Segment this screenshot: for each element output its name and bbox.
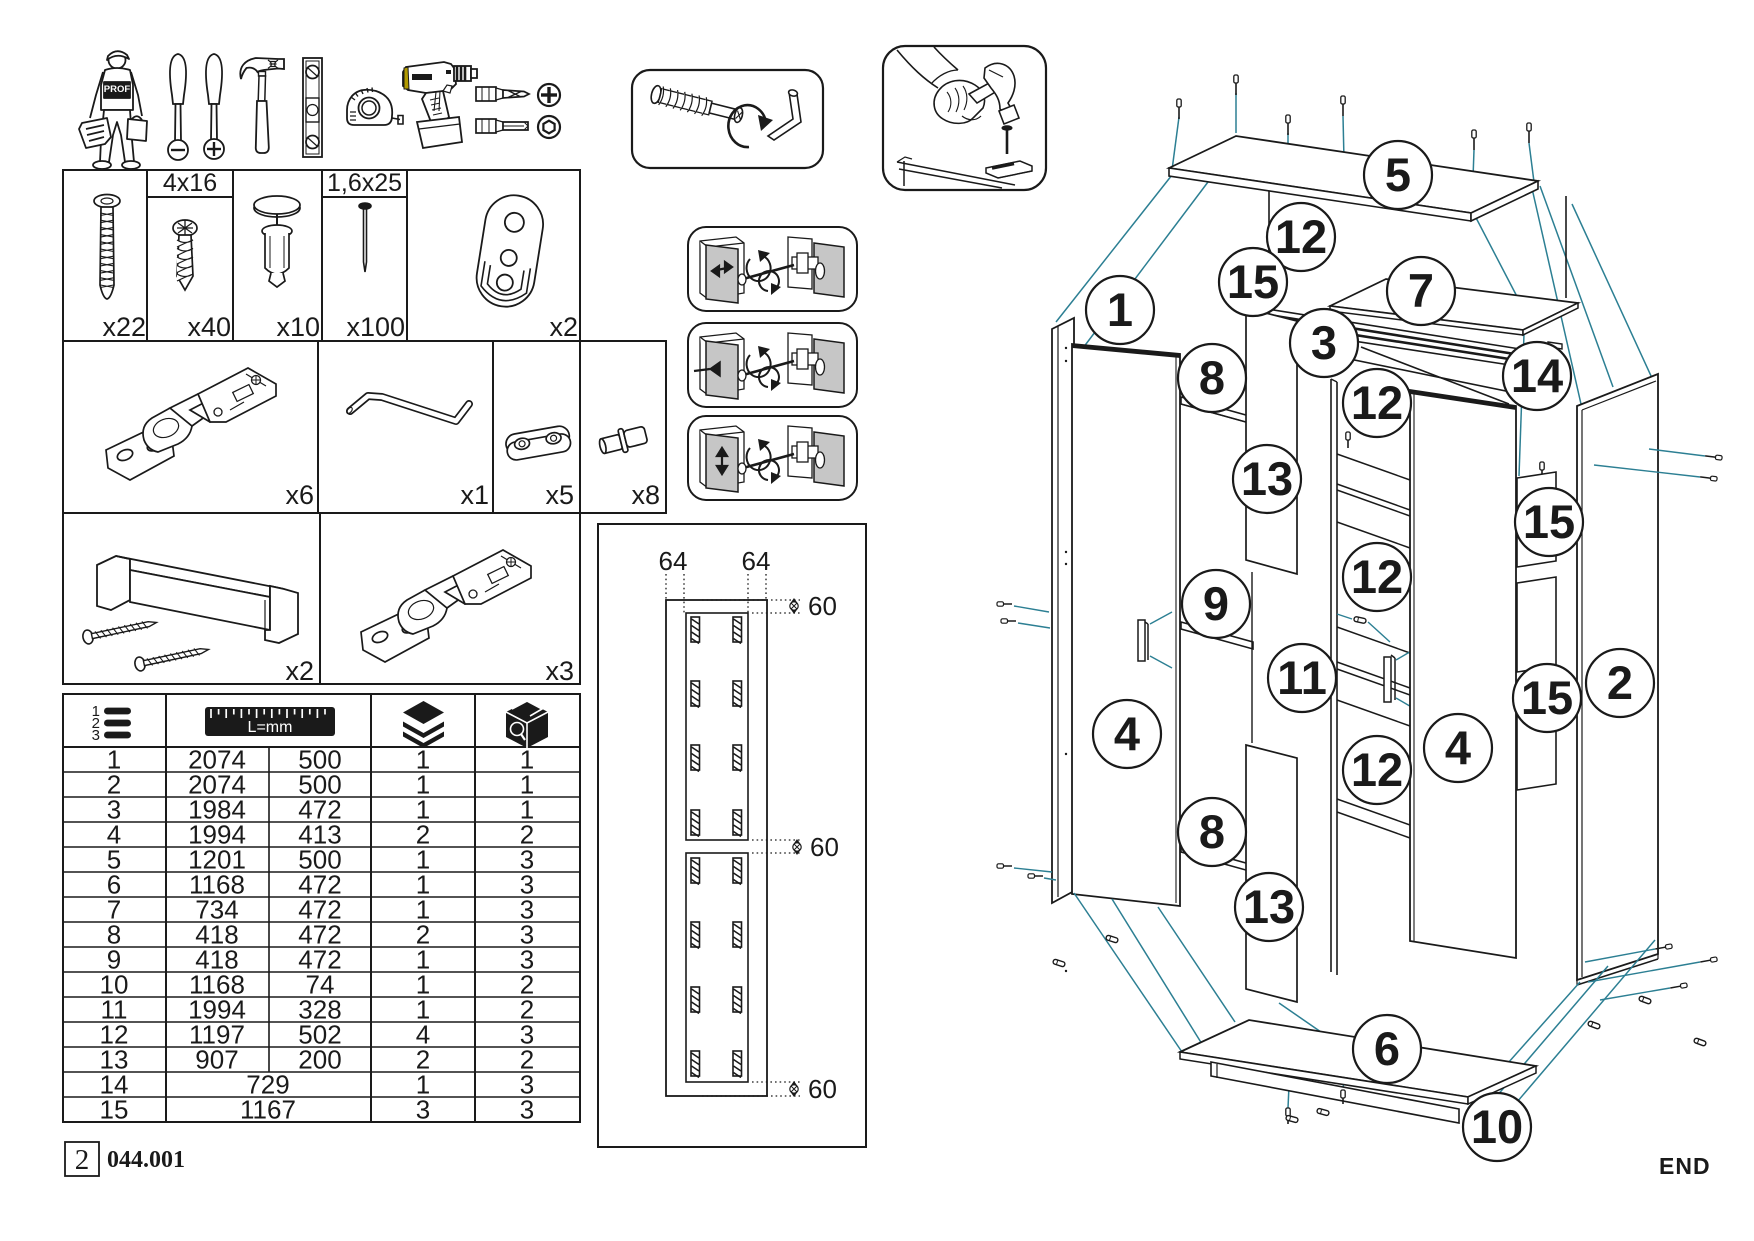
svg-text:60: 60 bbox=[808, 591, 837, 621]
svg-text:2: 2 bbox=[75, 1144, 90, 1176]
svg-text:L=mm: L=mm bbox=[248, 719, 293, 736]
svg-text:12: 12 bbox=[1351, 743, 1403, 796]
svg-text:60: 60 bbox=[810, 832, 839, 862]
svg-text:x10: x10 bbox=[276, 312, 320, 342]
svg-text:x22: x22 bbox=[102, 312, 146, 342]
svg-text:14: 14 bbox=[1511, 349, 1563, 402]
svg-text:x6: x6 bbox=[285, 480, 314, 510]
svg-text:x3: x3 bbox=[545, 656, 574, 686]
svg-text:8: 8 bbox=[1199, 351, 1225, 404]
svg-text:12: 12 bbox=[1275, 210, 1327, 263]
svg-text:x8: x8 bbox=[631, 480, 660, 510]
svg-text:x2: x2 bbox=[285, 656, 314, 686]
svg-text:11: 11 bbox=[1277, 651, 1327, 704]
svg-text:x40: x40 bbox=[187, 312, 231, 342]
svg-text:END: END bbox=[1659, 1153, 1711, 1179]
svg-text:x1: x1 bbox=[460, 480, 489, 510]
svg-text:x2: x2 bbox=[549, 312, 578, 342]
svg-text:1167: 1167 bbox=[240, 1095, 296, 1125]
svg-text:60: 60 bbox=[808, 1074, 837, 1104]
svg-text:044.001: 044.001 bbox=[107, 1147, 185, 1173]
svg-text:4: 4 bbox=[1445, 721, 1471, 774]
svg-text:8: 8 bbox=[1199, 805, 1225, 858]
svg-text:4: 4 bbox=[1114, 707, 1140, 760]
svg-text:64: 64 bbox=[742, 546, 771, 576]
svg-text:3: 3 bbox=[416, 1095, 430, 1125]
svg-text:x5: x5 bbox=[545, 480, 574, 510]
svg-text:3: 3 bbox=[1311, 316, 1337, 369]
svg-text:15: 15 bbox=[1523, 495, 1575, 548]
svg-text:7: 7 bbox=[1408, 264, 1434, 317]
svg-text:4x16: 4x16 bbox=[163, 169, 217, 197]
svg-text:3: 3 bbox=[92, 727, 100, 744]
svg-text:10: 10 bbox=[1471, 1100, 1523, 1153]
svg-text:12: 12 bbox=[1351, 376, 1403, 429]
svg-text:9: 9 bbox=[1203, 577, 1229, 630]
svg-text:3: 3 bbox=[520, 1095, 534, 1125]
svg-text:12: 12 bbox=[1351, 550, 1403, 603]
svg-text:1: 1 bbox=[1107, 283, 1133, 336]
svg-text:15: 15 bbox=[1227, 255, 1279, 308]
svg-text:6: 6 bbox=[1374, 1022, 1400, 1075]
svg-text:15: 15 bbox=[1521, 671, 1573, 724]
svg-text:1,6x25: 1,6x25 bbox=[327, 169, 402, 197]
svg-text:13: 13 bbox=[1243, 880, 1295, 933]
svg-text:15: 15 bbox=[100, 1095, 129, 1125]
svg-text:5: 5 bbox=[1385, 148, 1411, 201]
svg-text:907: 907 bbox=[195, 1045, 238, 1075]
svg-text:64: 64 bbox=[659, 546, 688, 576]
svg-text:x100: x100 bbox=[346, 312, 405, 342]
svg-text:13: 13 bbox=[1241, 452, 1293, 505]
svg-text:200: 200 bbox=[298, 1045, 341, 1075]
svg-text:2: 2 bbox=[1607, 656, 1633, 709]
svg-text:PROF: PROF bbox=[104, 84, 131, 95]
